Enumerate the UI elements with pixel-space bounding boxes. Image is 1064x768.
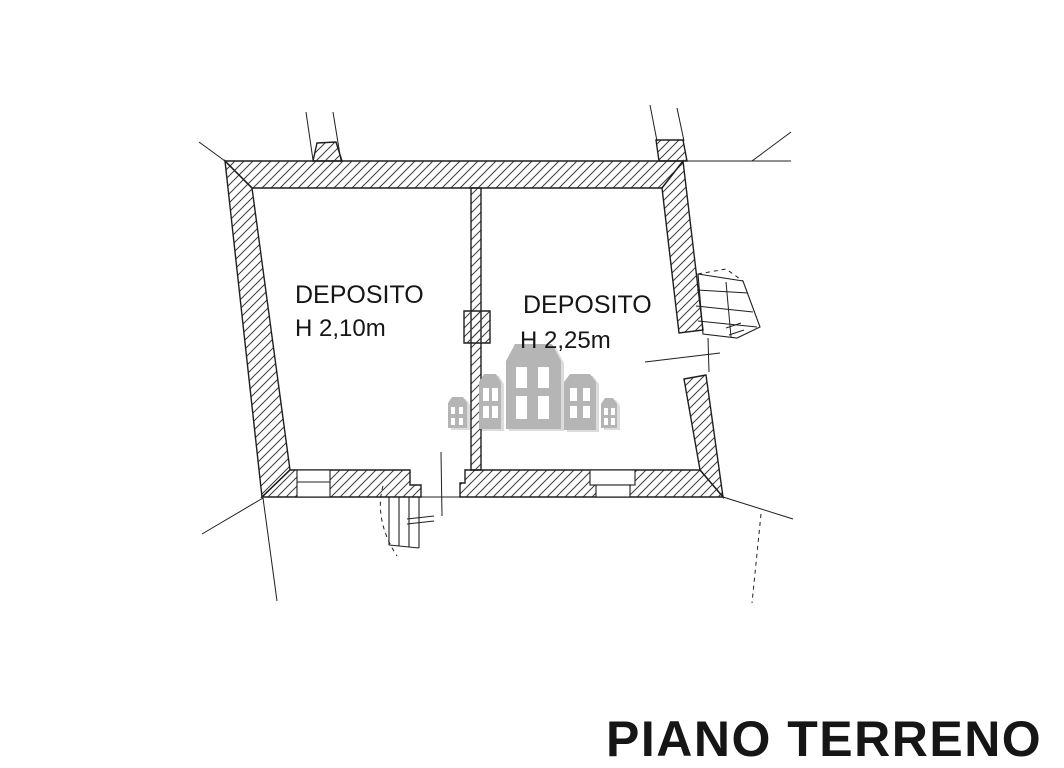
building-icon [479,374,501,429]
floor-plan-page: DEPOSITO H 2,10m DEPOSITO H 2,25m PIANO … [0,0,1064,768]
boundary-line-dashed [752,514,761,603]
floor-plan-drawing: DEPOSITO H 2,10m DEPOSITO H 2,25m PIANO … [0,0,1064,768]
building-icon [564,374,596,430]
plan-title: PIANO TERRENO [606,711,1042,767]
right-wall-upper [662,161,703,333]
room1-name-label: DEPOSITO [295,281,424,309]
top-wall-stub-right [656,140,687,161]
break-mark [407,521,434,524]
boundary-line [723,497,793,519]
window-bottom-left [297,470,330,497]
boundary-line [202,498,263,534]
top-wall-stub-left [313,142,342,161]
building-icon [506,344,561,429]
break-mark [407,516,434,519]
partition-pillar [464,311,490,343]
boundary-line [306,112,313,160]
break-mark [729,330,744,335]
boundary-line [199,142,225,161]
window-bottom-right [590,470,635,497]
boundary-line [263,498,277,601]
top-wall [225,161,683,188]
building-icon [601,398,617,428]
external-stair-right [696,269,760,338]
building-icon [448,397,467,428]
section-mark-line [441,452,442,516]
opening-line [708,338,709,372]
room1-height-label: H 2,10m [295,315,386,342]
boundary-line [677,108,684,141]
boundary-line [650,105,657,141]
room2-name-label: DEPOSITO [523,291,652,319]
boundary-line [752,132,791,161]
stair-outline [698,274,760,338]
room2-height-label: H 2,25m [520,327,611,354]
left-wall [225,161,290,497]
bottom-wall-left [262,470,421,497]
